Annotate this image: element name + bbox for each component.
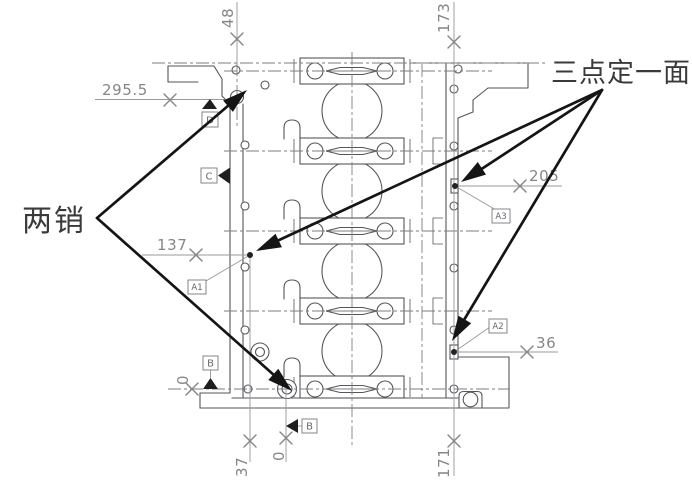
- face-hole: [261, 81, 269, 89]
- two-pins-arrow-top: [97, 105, 229, 218]
- dim-37: 37: [233, 457, 251, 477]
- datum-triangle-c: [218, 168, 230, 185]
- datum-label-b-bottom: B: [306, 422, 313, 433]
- datum-target-point-a3: [452, 183, 458, 189]
- face-hole: [241, 141, 249, 149]
- three-points-arrowhead-a1: [256, 234, 282, 251]
- water-jacket-bump: [284, 200, 300, 219]
- two-pins-label: 两销: [22, 204, 86, 239]
- datum-label-b-left: B: [207, 359, 214, 370]
- water-jacket-bump: [284, 120, 300, 139]
- datum-target-point-a1: [247, 252, 253, 258]
- dim-48: 48: [219, 8, 237, 28]
- face-hole: [241, 326, 249, 334]
- datum-target-label-a3: A3: [495, 212, 506, 222]
- three-points-arrowhead-a3: [461, 162, 486, 182]
- dim-295-5: 295.5: [102, 81, 148, 99]
- dim-171: 171: [435, 448, 453, 478]
- dim-0-left: 0: [174, 375, 192, 385]
- left-outer-edge: [168, 66, 230, 393]
- dim-137: 137: [157, 236, 187, 254]
- bottom-left-step: [200, 393, 230, 408]
- datum-label-c: C: [206, 172, 213, 183]
- datum-triangle-b-left: [203, 378, 218, 389]
- dim-36: 36: [536, 334, 556, 352]
- face-hole: [232, 66, 240, 74]
- face-hole: [241, 263, 249, 271]
- datum-triangle-d: [202, 99, 217, 109]
- dim-0-bottom: 0: [270, 451, 288, 461]
- three-points-arrow-a3: [480, 90, 602, 170]
- dim-173: 173: [435, 3, 453, 33]
- datum-target-label-a1: A1: [191, 283, 202, 293]
- three-points-arrow-a2: [464, 90, 602, 320]
- water-jacket-bump: [284, 358, 300, 377]
- datum-target-point-a2: [451, 349, 457, 355]
- datum-triangle-b-bottom: [286, 419, 298, 433]
- engine-block-drawing: A1 A3 A2 D C B B 295.5 137 205 36 48 173…: [0, 0, 692, 490]
- corner-boss-hole: [463, 392, 478, 407]
- water-jacket-bump: [284, 280, 300, 299]
- boss-hole: [256, 348, 265, 357]
- face-hole: [241, 202, 249, 210]
- datum-target-label-a2: A2: [492, 322, 503, 332]
- three-points-plane-label: 三点定一面: [551, 58, 691, 89]
- leader-a3: [455, 186, 496, 210]
- cad-drawing-canvas: A1 A3 A2 D C B B 295.5 137 205 36 48 173…: [0, 0, 692, 490]
- face-hole: [454, 65, 462, 73]
- top-left-flange: [168, 66, 198, 82]
